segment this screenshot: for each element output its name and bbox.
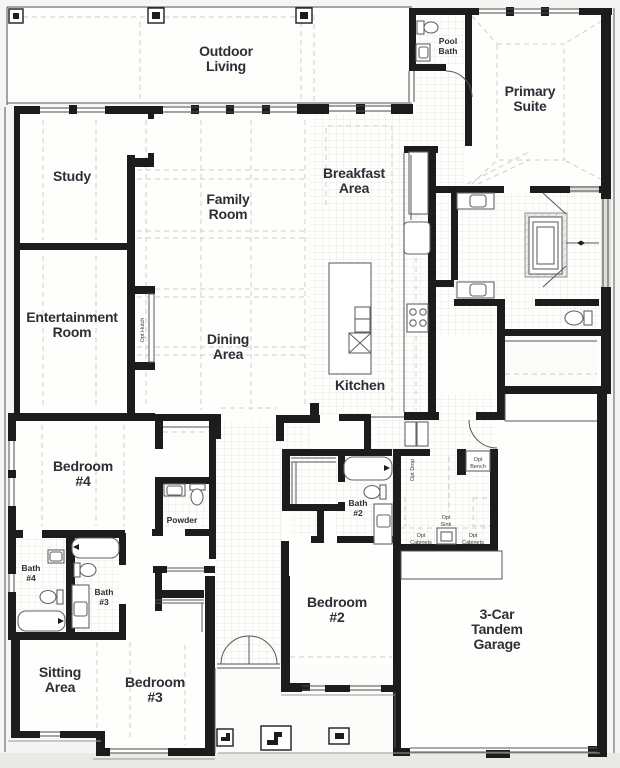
svg-text:Opt Hutch: Opt Hutch <box>140 318 146 343</box>
svg-text:#2: #2 <box>353 508 363 518</box>
svg-text:Sink: Sink <box>441 522 452 528</box>
svg-text:Opt: Opt <box>442 515 451 521</box>
svg-text:Area: Area <box>45 679 76 695</box>
svg-text:Opt: Opt <box>417 533 426 539</box>
svg-text:#3: #3 <box>99 597 109 607</box>
svg-text:Bath: Bath <box>95 587 114 597</box>
svg-text:Primary: Primary <box>505 83 556 99</box>
svg-text:Powder: Powder <box>167 515 198 525</box>
svg-text:Bench: Bench <box>470 464 486 470</box>
svg-text:Area: Area <box>213 346 244 362</box>
svg-text:Opt Drop: Opt Drop <box>410 459 416 481</box>
svg-text:Room: Room <box>53 324 92 340</box>
svg-text:Tandem: Tandem <box>471 621 522 637</box>
svg-text:Room: Room <box>209 206 248 222</box>
svg-text:#3: #3 <box>147 689 163 705</box>
svg-text:Breakfast: Breakfast <box>323 165 386 181</box>
svg-text:Bedroom: Bedroom <box>125 674 185 690</box>
svg-text:Pool: Pool <box>439 36 457 46</box>
svg-text:Bedroom: Bedroom <box>53 458 113 474</box>
svg-text:Sitting: Sitting <box>39 664 81 680</box>
svg-text:#4: #4 <box>26 573 36 583</box>
svg-text:Bath: Bath <box>439 46 458 56</box>
svg-text:Entertainment: Entertainment <box>26 309 118 325</box>
svg-text:Opt: Opt <box>474 457 483 463</box>
svg-text:Suite: Suite <box>513 98 547 114</box>
svg-text:Cabinets: Cabinets <box>410 540 432 546</box>
svg-text:Bath: Bath <box>349 498 368 508</box>
svg-text:Family: Family <box>206 191 250 207</box>
svg-text:Area: Area <box>339 180 370 196</box>
svg-text:Bedroom: Bedroom <box>307 594 367 610</box>
svg-text:Bath: Bath <box>22 563 41 573</box>
svg-text:#2: #2 <box>329 609 345 625</box>
svg-text:Garage: Garage <box>473 636 520 652</box>
svg-text:3-Car: 3-Car <box>480 606 516 622</box>
svg-text:Dining: Dining <box>207 331 249 347</box>
svg-text:#4: #4 <box>75 473 91 489</box>
svg-text:Study: Study <box>53 168 91 184</box>
svg-text:Outdoor: Outdoor <box>199 43 254 59</box>
svg-text:Living: Living <box>206 58 246 74</box>
svg-text:Kitchen: Kitchen <box>335 377 385 393</box>
svg-text:Cabinets: Cabinets <box>462 540 484 546</box>
svg-text:Opt: Opt <box>469 533 478 539</box>
